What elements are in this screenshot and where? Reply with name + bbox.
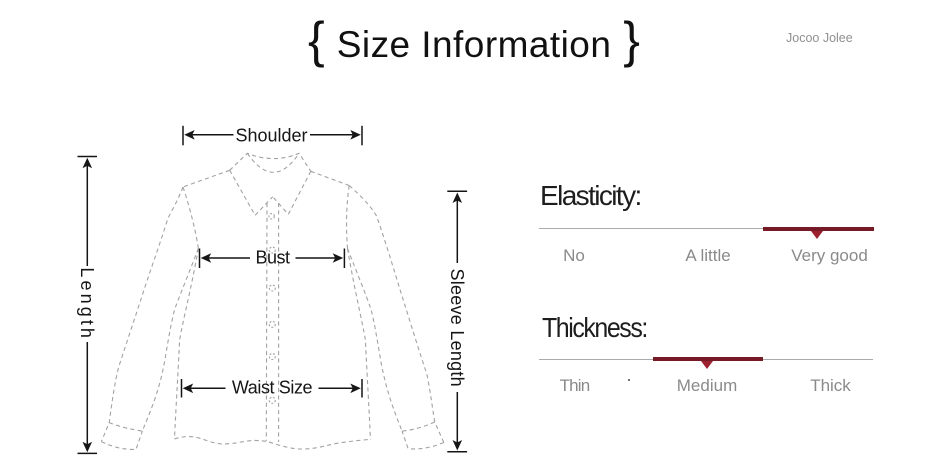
svg-text:Length: Length [77,267,97,341]
svg-text:Waist Size: Waist Size [232,378,313,398]
svg-text:Sleeve Length: Sleeve Length [447,269,467,387]
svg-text:Shoulder: Shoulder [235,125,307,145]
svg-text:Bust: Bust [255,248,290,268]
